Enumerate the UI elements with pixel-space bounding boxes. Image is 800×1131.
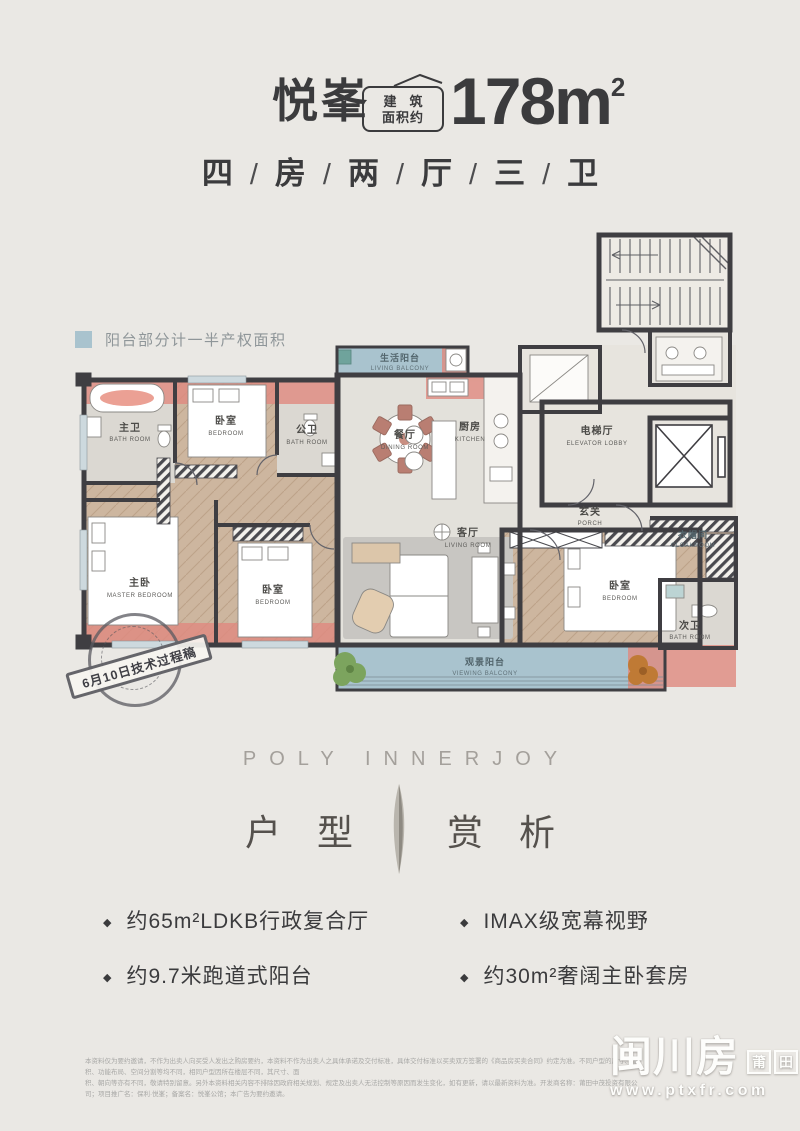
kitchen-island-icon (432, 421, 456, 499)
disclaimer: 本资料仅为要约邀请，不作为出卖人向买受人发出之购房要约，本资料不作为出卖人之具体… (85, 1056, 645, 1100)
feature-text: 约30m²奢阔主卧套房 (483, 960, 689, 990)
area-superscript: 2 (611, 72, 625, 102)
room-label: 卧室 (215, 414, 237, 427)
area-value: 178m2 (450, 68, 625, 134)
feature-text: IMAX级宽幕视野 (483, 905, 648, 935)
subtitle-slash: / (323, 159, 331, 191)
watermark-city-char: 莆 (747, 1050, 771, 1074)
room-label: 生活阳台 (380, 352, 420, 363)
subtitle-slash: / (469, 159, 477, 191)
room-label: 次卫 (679, 619, 701, 632)
room-label-en: LIVING ROOM (445, 543, 492, 549)
watermark-url: www.ptxfr.com (610, 1082, 800, 1100)
diamond-bullet-icon: ◆ (103, 971, 111, 984)
heading-right: 赏析 (447, 804, 591, 856)
room-label-en: BEDROOM (255, 600, 290, 606)
site-watermark: 闽川房 莆 田 www.ptxfr.com (610, 1036, 800, 1100)
subtitle-slash: / (396, 159, 404, 191)
disclaimer-line1: 本资料仅为要约邀请，不作为出卖人向买受人发出之购房要约，本资料不作为出卖人之具体… (85, 1056, 645, 1078)
room-label: 衣帽间 (678, 529, 708, 540)
heading-left: 户型 (245, 804, 389, 856)
room-label-en: DINING ROOM (381, 445, 429, 451)
floor-plan-container: 主卫 BATH ROOM 卧室 BEDROOM 公卫 BATH ROOM 生活阳… (60, 225, 740, 705)
subtitle-char: 卫 (567, 156, 598, 191)
diamond-bullet-icon: ◆ (460, 971, 468, 984)
project-title: 悦峯 (272, 78, 370, 124)
room-label-en: BEDROOM (602, 596, 637, 602)
legend-swatch (75, 331, 92, 348)
feature-item: ◆ 约9.7米跑道式阳台 (103, 960, 313, 990)
table-icon (472, 557, 498, 623)
badge-notch-decoration (392, 72, 444, 88)
room-label-en: BATH ROOM (109, 437, 150, 443)
room-label: 厨房 (459, 420, 481, 433)
toilet-icon (158, 431, 170, 447)
disclaimer-line2: 积、朝向等亦有不同，敬请特别留意。另外本资料相关内容不排除因政府相关规划、规定及… (85, 1078, 645, 1100)
feature-text: 约9.7米跑道式阳台 (126, 960, 312, 990)
room-label: 玄关 (579, 505, 601, 518)
room-label: 主卫 (119, 421, 141, 434)
area-badge-line1: 建 筑 (383, 93, 422, 110)
feature-item: ◆ 约30m²奢阔主卧套房 (460, 960, 689, 990)
layout-subtitle: 四/房/两/厅/三/卫 (0, 148, 800, 193)
subtitle-char: 两 (348, 156, 379, 191)
watermark-city: 莆 田 (744, 1050, 798, 1074)
diamond-bullet-icon: ◆ (460, 916, 468, 929)
room-label: 卧室 (262, 583, 284, 596)
room-label: 餐厅 (393, 428, 416, 441)
watermark-name: 闽川房 (610, 1036, 739, 1078)
watermark-city-char: 田 (774, 1050, 798, 1074)
room-label-en: KITCHEN (455, 437, 486, 443)
room-label: 电梯厅 (581, 424, 614, 437)
room-label-en: ELEVATOR LOBBY (566, 441, 627, 447)
room-label-en: CLOAKROOM (671, 543, 715, 549)
subtitle-char: 房 (275, 156, 306, 191)
feature-item: ◆ 约65m²LDKB行政复合厅 (103, 905, 369, 935)
legend: 阳台部分计一半产权面积 (75, 329, 287, 350)
room-label-en: LIVING BALCONY (371, 366, 429, 372)
subtitle-char: 三 (494, 156, 525, 191)
room-label: 观景阳台 (465, 656, 505, 667)
area-badge: 建 筑 面积约 (362, 86, 444, 132)
area-badge-line2: 面积约 (382, 110, 424, 126)
feather-decoration (387, 782, 411, 878)
feature-item: ◆ IMAX级宽幕视野 (460, 905, 649, 935)
subtitle-char: 四 (202, 156, 233, 191)
subtitle-slash: / (250, 159, 258, 191)
area-number: 178m (450, 64, 611, 138)
room-label: 主卧 (129, 576, 151, 589)
room-label-en: BATH ROOM (669, 635, 710, 641)
section-heading: 户型 赏析 (0, 782, 800, 878)
room-label-en: PORCH (578, 521, 603, 527)
room-label: 客厅 (456, 526, 479, 539)
real-estate-poster: 悦峯 建 筑 面积约 178m2 四/房/两/厅/三/卫 阳台部分计一半产权面积 (0, 0, 800, 1131)
room-label-en: MASTER BEDROOM (107, 593, 173, 599)
room-label-en: BEDROOM (208, 431, 243, 437)
legend-label: 阳台部分计一半产权面积 (105, 329, 287, 350)
room-label-en: VIEWING BALCONY (452, 671, 517, 677)
room-label: 卧室 (609, 579, 631, 592)
brand-line: POLY INNERJOY (0, 748, 800, 771)
subtitle-char: 厅 (421, 156, 452, 191)
diamond-bullet-icon: ◆ (103, 916, 111, 929)
room-label-en: BATH ROOM (286, 440, 327, 446)
feature-text: 约65m²LDKB行政复合厅 (126, 905, 369, 935)
subtitle-slash: / (542, 159, 550, 191)
room-label: 公卫 (296, 424, 318, 436)
